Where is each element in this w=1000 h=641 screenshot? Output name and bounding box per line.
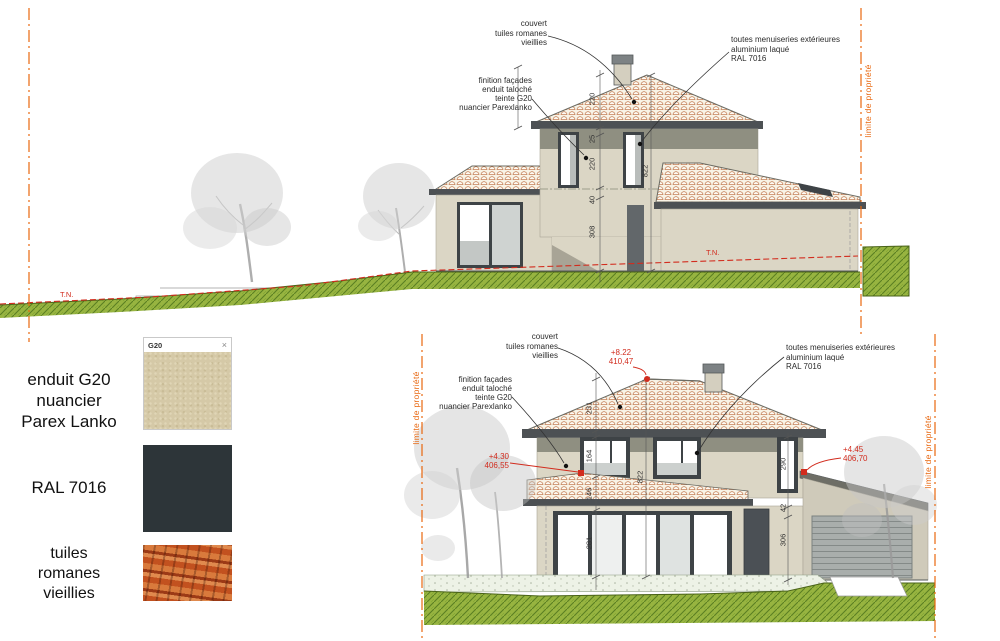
- main-eaves-band: [522, 429, 826, 438]
- dim-window-bottom: 164: [585, 450, 594, 463]
- leader-dot: [618, 405, 622, 409]
- canopy-eaves-band: [523, 499, 753, 506]
- main-eaves-band: [531, 121, 763, 129]
- tn-label-right: T.N.: [706, 248, 719, 257]
- tree-right: [358, 163, 435, 272]
- window-pane: [657, 463, 697, 475]
- dim-roof-top: 220: [588, 93, 597, 106]
- annotation-menuiseries-bottom: toutes menuiseries extérieures aluminium…: [786, 343, 895, 372]
- annotation-finition-bottom: finition façades enduit taloché teinte G…: [439, 375, 512, 411]
- right-wing-eaves-band: [654, 202, 866, 209]
- main-hip-roof: [536, 75, 758, 122]
- dim-canopy-bottom: 146: [585, 488, 594, 501]
- window-pane: [584, 463, 626, 475]
- glass-pane: [460, 241, 489, 265]
- tree-left: [183, 153, 291, 282]
- terrain-grass: [0, 272, 860, 318]
- glass-pane: [694, 515, 727, 575]
- level-right: +4.45 406,70: [843, 445, 867, 463]
- driveway: [830, 577, 907, 596]
- tree-cluster-left: [404, 406, 536, 578]
- leader-dot: [632, 100, 636, 104]
- annotation-menuiseries-top: toutes menuiseries extérieures aluminium…: [731, 35, 840, 64]
- g20-material-label: enduit G20 nuancier Parex Lanko: [5, 369, 133, 432]
- dim-door: 306: [779, 534, 788, 547]
- glass-pane: [660, 515, 690, 575]
- dim-ground-top: 308: [588, 226, 597, 239]
- leader-dot: [564, 464, 568, 468]
- g20-swatch-card: G20 ×: [143, 337, 232, 430]
- property-limit-label-bottom-right: limite de propriété: [923, 415, 933, 488]
- chimney-cap: [703, 364, 724, 373]
- chimney-cap: [612, 55, 633, 64]
- annotation-couvert-top: couvert tuiles romanes vieillies: [495, 19, 547, 48]
- g20-swatch-title: G20: [148, 341, 162, 350]
- glass-pane: [558, 515, 588, 575]
- property-limit-label-bottom-left: limite de propriété: [411, 371, 421, 444]
- dim-window-top: 220: [588, 158, 597, 171]
- g20-texture-sample: [144, 352, 231, 429]
- dim-roof-bottom: 231: [585, 402, 594, 415]
- neighbor-terrain: [863, 246, 909, 296]
- dim-right-window: 290: [779, 458, 788, 471]
- dim-spacer: 42: [779, 504, 788, 512]
- terrace-gravel: [424, 575, 827, 592]
- glass-pane: [626, 515, 656, 575]
- dim-total-bottom: 822: [636, 471, 645, 484]
- level-ridge: +8.22 410,47: [609, 348, 633, 366]
- tall-opening: [627, 205, 644, 271]
- window-pane: [626, 135, 635, 185]
- leader-dot: [638, 142, 642, 146]
- property-limit-label-top: limite de propriété: [863, 64, 873, 137]
- tuiles-material-label: tuiles romanes vieillies: [5, 544, 133, 604]
- entrance-door: [744, 509, 769, 575]
- glass-pane: [592, 515, 622, 575]
- left-wing-eaves-band: [429, 189, 556, 195]
- leader-dot: [695, 451, 699, 455]
- level-left: +4.30 406,55: [485, 452, 509, 470]
- tuiles-swatch: [143, 545, 232, 601]
- window-pane: [561, 135, 570, 185]
- architectural-drawing-canvas: couvert tuiles romanes vieillies toutes …: [0, 0, 1000, 641]
- ral7016-material-label: RAL 7016: [5, 477, 133, 498]
- dim-eaves-top: 25: [588, 135, 597, 143]
- close-icon[interactable]: ×: [222, 341, 227, 350]
- annotation-couvert-bottom: couvert tuiles romanes vieillies: [506, 332, 558, 361]
- glass-pane: [492, 205, 520, 265]
- ral7016-swatch: [143, 445, 232, 532]
- left-wing-roof: [433, 166, 552, 191]
- annotation-finition-top: finition façades enduit taloché teinte G…: [459, 76, 532, 112]
- dim-ground-bottom: 281: [585, 537, 594, 550]
- dim-total-top: 822: [641, 165, 650, 178]
- dim-slab-top: 40: [588, 196, 597, 204]
- right-wing-wall: [661, 209, 858, 271]
- tn-label-left: T.N.: [60, 290, 73, 299]
- main-hip-roof: [527, 379, 822, 430]
- chimney: [705, 372, 722, 392]
